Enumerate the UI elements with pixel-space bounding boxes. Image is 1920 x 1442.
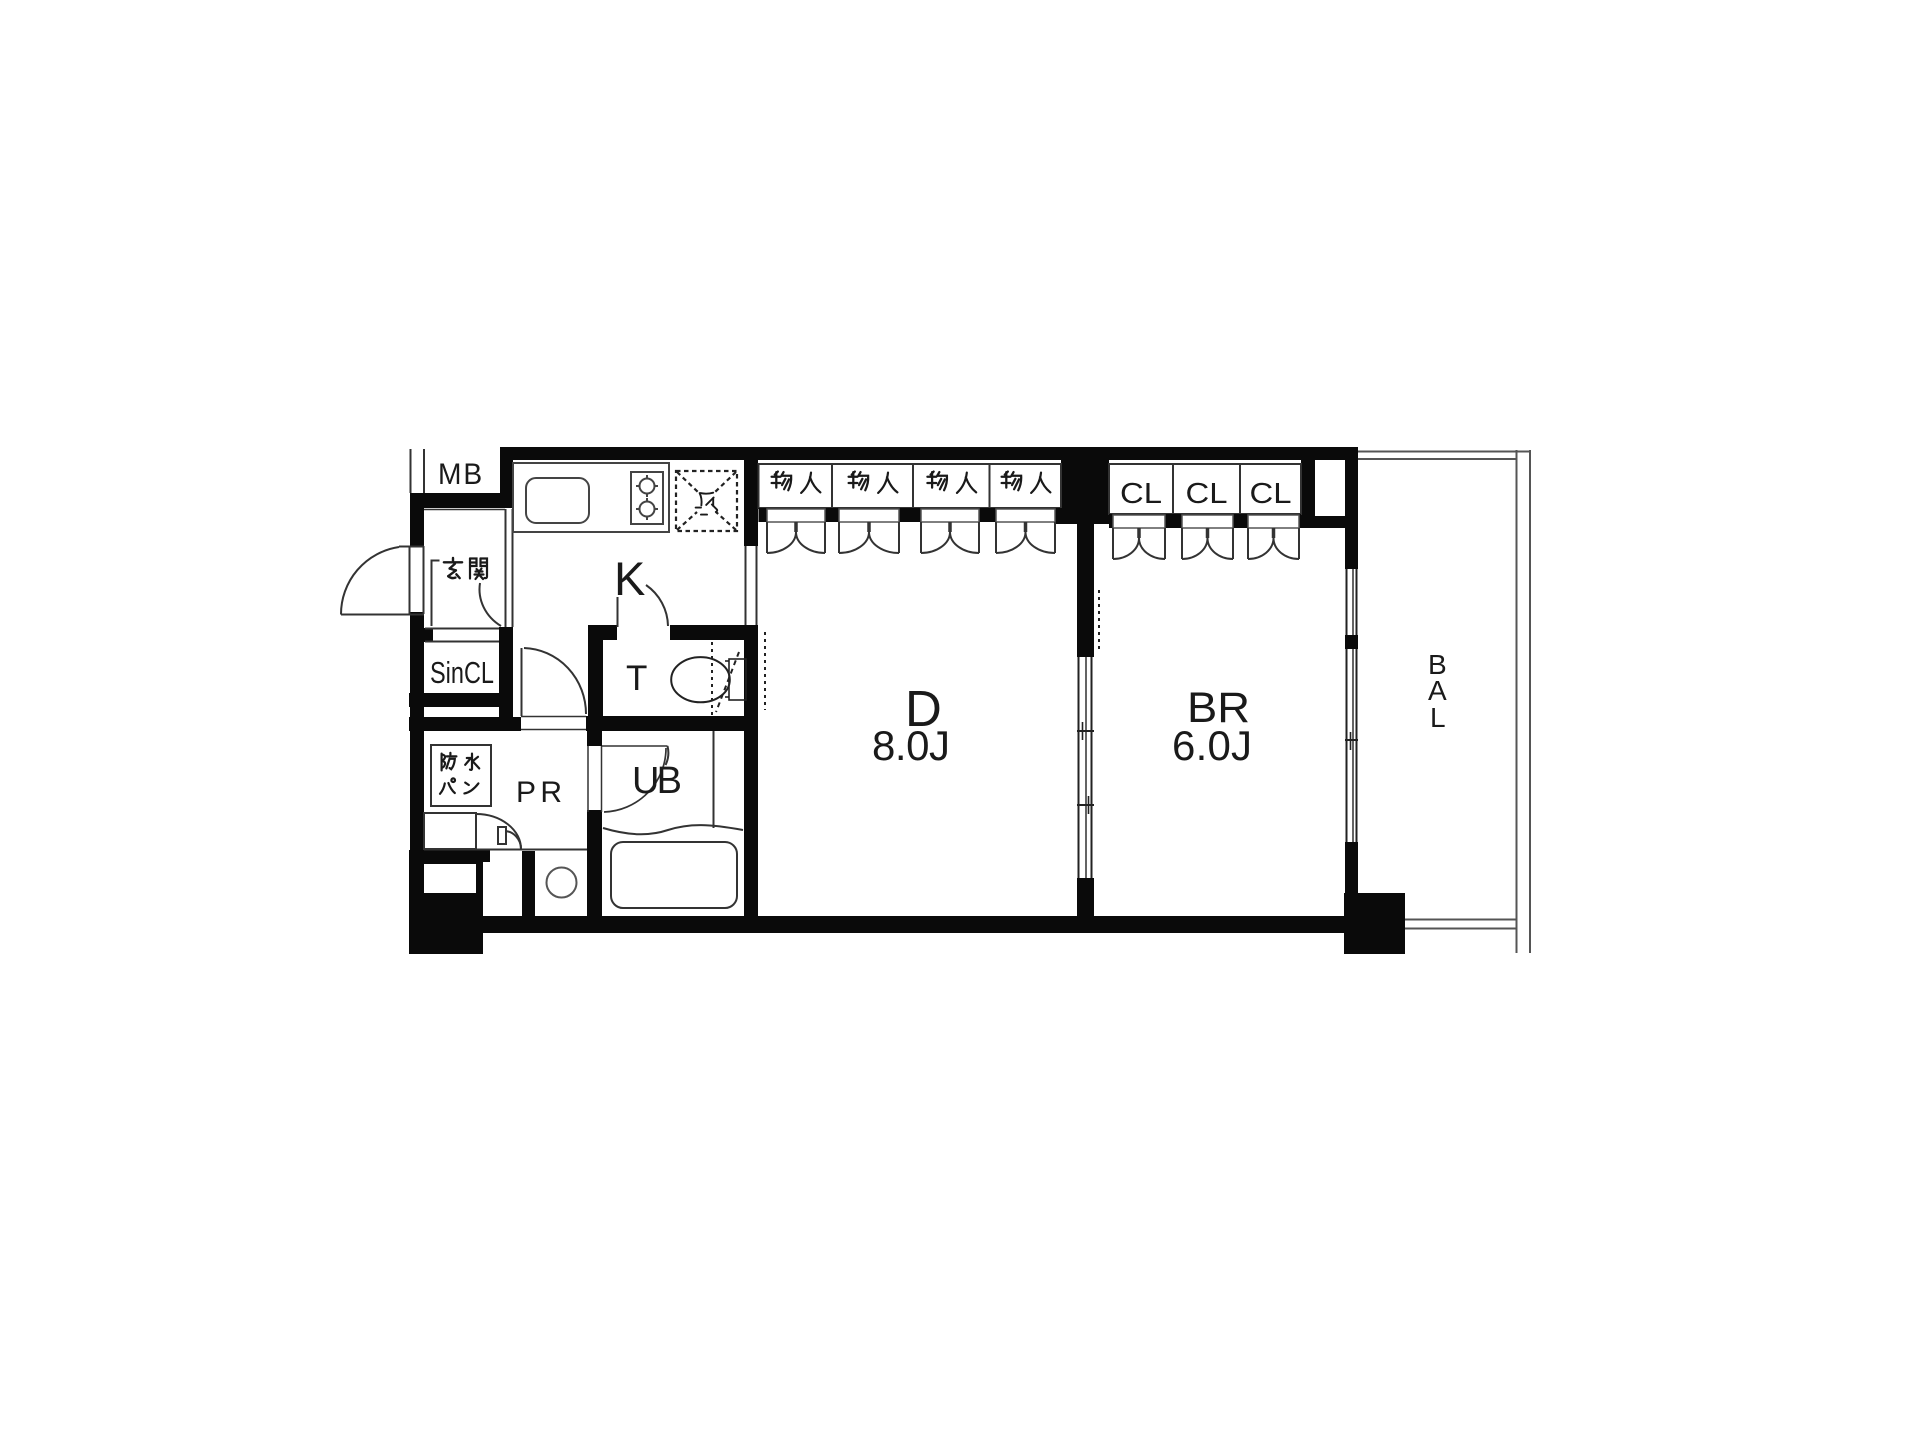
svg-text:UB: UB: [632, 760, 682, 802]
svg-text:SinCL: SinCL: [430, 655, 494, 690]
svg-text:CL: CL: [1250, 478, 1292, 510]
svg-text:CL: CL: [1186, 478, 1228, 510]
svg-text:K: K: [614, 552, 645, 605]
svg-text:T: T: [626, 659, 647, 698]
svg-text:8.0J: 8.0J: [872, 722, 950, 769]
svg-text:MB: MB: [438, 458, 484, 491]
svg-text:CL: CL: [1120, 478, 1162, 510]
svg-text:L: L: [1430, 702, 1446, 733]
svg-text:6.0J: 6.0J: [1172, 722, 1252, 769]
